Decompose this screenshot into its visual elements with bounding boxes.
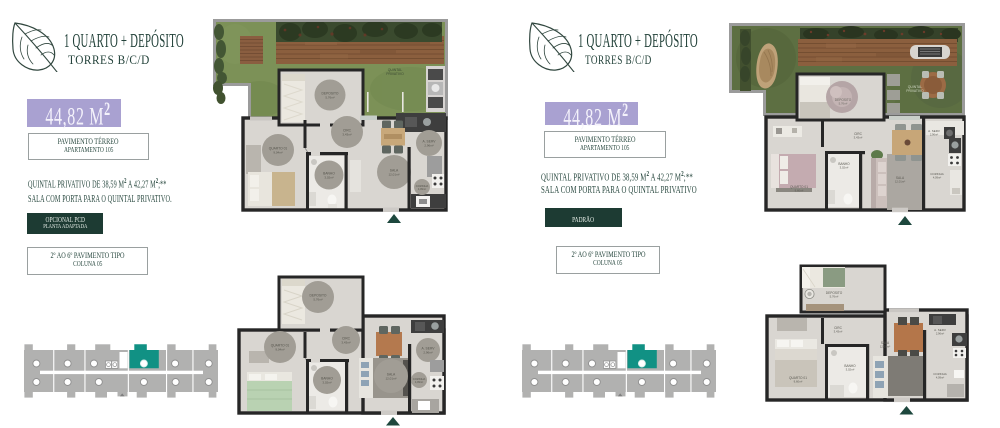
svg-text:9,04m²: 9,04m² <box>273 151 282 155</box>
svg-text:2,96m²: 2,96m² <box>936 331 944 335</box>
svg-text:12,01m²: 12,01m² <box>895 180 905 184</box>
svg-text:3,02m²: 3,02m² <box>840 166 849 170</box>
svg-text:4,09m²: 4,09m² <box>933 175 941 179</box>
svg-text:3,02m²: 3,02m² <box>846 368 855 372</box>
svg-text:2,96m²: 2,96m² <box>424 144 433 148</box>
svg-text:3,43m²: 3,43m² <box>834 330 843 334</box>
svg-text:12,01m²: 12,01m² <box>385 377 396 381</box>
svg-text:3,43m²: 3,43m² <box>341 341 350 345</box>
svg-text:3,43m²: 3,43m² <box>342 133 351 137</box>
svg-text:3,02m²: 3,02m² <box>322 381 331 385</box>
svg-text:COZINHA: COZINHA <box>930 172 944 176</box>
svg-text:2,96m²: 2,96m² <box>930 132 938 136</box>
svg-text:PRIVATIVO: PRIVATIVO <box>906 89 924 93</box>
svg-text:3,43m²: 3,43m² <box>854 136 863 140</box>
svg-text:COZINHA: COZINHA <box>933 372 947 376</box>
svg-text:4,09m²: 4,09m² <box>415 380 423 384</box>
svg-text:A. SERV: A. SERV <box>934 328 946 332</box>
svg-text:4,09m²: 4,09m² <box>936 375 944 379</box>
svg-text:A. SERV: A. SERV <box>928 129 940 133</box>
svg-text:5,76m²: 5,76m² <box>325 96 334 100</box>
svg-text:2,96m²: 2,96m² <box>423 351 432 355</box>
svg-text:4,09m²: 4,09m² <box>418 187 426 191</box>
svg-text:PRIVATIVO: PRIVATIVO <box>386 72 404 76</box>
svg-text:9,60m²: 9,60m² <box>794 380 803 384</box>
svg-text:12,01m²: 12,01m² <box>388 173 399 177</box>
svg-text:5,76m²: 5,76m² <box>313 298 322 302</box>
svg-text:3,02m²: 3,02m² <box>324 176 333 180</box>
svg-text:9,04m²: 9,04m² <box>275 348 284 352</box>
svg-text:5,76m²: 5,76m² <box>830 295 839 299</box>
svg-text:9,60m²: 9,60m² <box>795 189 804 193</box>
svg-text:5,76m²: 5,76m² <box>839 102 848 106</box>
svg-text:12,01m²: 12,01m² <box>880 345 890 349</box>
